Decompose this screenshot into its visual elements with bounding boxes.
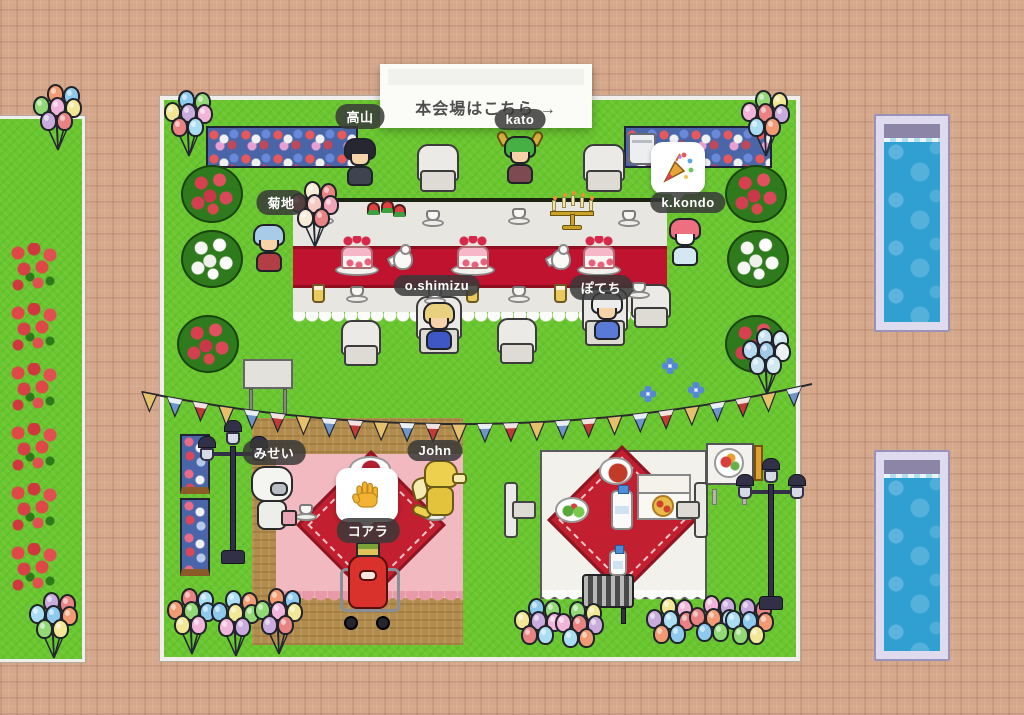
venue-direction-sign: 本会場はこちら →: [380, 64, 592, 128]
pool-top: [874, 114, 950, 332]
balloon-bunch: [554, 601, 606, 671]
juice-glass: [312, 284, 325, 303]
player-john[interactable]: [410, 460, 472, 544]
raised-hand-icon: [350, 478, 384, 512]
chair[interactable]: [583, 144, 621, 192]
water-bottle: [611, 490, 633, 530]
pool-waterline: [884, 138, 940, 142]
chair[interactable]: [678, 482, 708, 534]
nametag-takayama: 高山: [335, 104, 384, 129]
rose-flower-cluster: [8, 483, 66, 537]
bunting-garland: [136, 366, 820, 462]
small-bottle: [609, 550, 627, 576]
rose-flower-cluster: [8, 423, 66, 477]
nametag-potechi: ぽてち: [570, 275, 633, 300]
reaction-bubble-kkondo: [651, 142, 705, 194]
rose-flower-cluster: [8, 243, 66, 297]
pool-water: [884, 138, 940, 322]
player-oshimizu[interactable]: [420, 302, 458, 358]
pool-water: [884, 474, 940, 651]
balloon-bunch: [163, 90, 215, 160]
chair[interactable]: [341, 320, 377, 366]
player-kkondo[interactable]: [666, 218, 704, 274]
rose-bush: [181, 165, 243, 223]
candelabra: [546, 192, 598, 230]
player-koala[interactable]: [334, 540, 402, 632]
chair[interactable]: [497, 318, 533, 364]
white-flower-bush: [727, 230, 789, 288]
watermelon-plate: [362, 200, 410, 232]
player-takayama[interactable]: [341, 138, 379, 194]
player-misei[interactable]: [245, 464, 303, 546]
nametag-kkondo: k.kondo: [650, 192, 725, 213]
pool-ledge: [884, 460, 940, 474]
balloon-bunch: [32, 84, 84, 154]
teacup: [508, 286, 530, 303]
player-kato[interactable]: [501, 136, 539, 192]
player-kikuchi[interactable]: [250, 224, 288, 280]
teacup: [618, 210, 640, 227]
balloon-bunch: [740, 90, 792, 160]
pool-ledge: [884, 124, 940, 138]
balloon-bunch: [253, 588, 305, 658]
juice-glass: [554, 284, 567, 303]
teacup: [346, 286, 368, 303]
nametag-john: John: [407, 440, 462, 461]
party-popper-icon: [660, 150, 696, 186]
teapot: [546, 244, 576, 271]
white-flower-bush: [181, 230, 243, 288]
reaction-bubble-koala: [336, 468, 398, 522]
salad-plate: [555, 497, 589, 523]
nametag-kikuchi: 菊地: [256, 190, 305, 215]
nametag-oshimizu: o.shimizu: [394, 275, 480, 296]
watermelon-slice: [393, 204, 406, 217]
watermelon-slice: [367, 202, 380, 215]
nametag-misei: みせい: [243, 440, 306, 465]
rose-flower-cluster: [8, 363, 66, 417]
rose-bush: [725, 165, 787, 223]
teacup: [422, 210, 444, 227]
pool-waterline: [884, 474, 940, 478]
nametag-kato: kato: [495, 109, 546, 130]
chair[interactable]: [417, 144, 455, 192]
pool-bottom: [874, 450, 950, 661]
teapot: [388, 244, 418, 271]
flower-bed: [206, 126, 358, 168]
player-potechi[interactable]: [588, 292, 626, 348]
nametag-koala: コアラ: [337, 518, 400, 543]
rose-bush: [177, 315, 239, 373]
balloon-bunch: [28, 592, 80, 662]
left-garden-strip: [0, 116, 85, 662]
rose-flower-cluster: [8, 543, 66, 597]
party-venue-map[interactable]: 本会場はこちら →: [0, 0, 1024, 715]
street-lamp: [733, 458, 809, 610]
strawberry-cake: [576, 234, 622, 276]
teacup: [508, 208, 530, 225]
chair[interactable]: [504, 482, 534, 534]
rose-flower-cluster: [8, 303, 66, 357]
strawberry-cake: [450, 234, 496, 276]
